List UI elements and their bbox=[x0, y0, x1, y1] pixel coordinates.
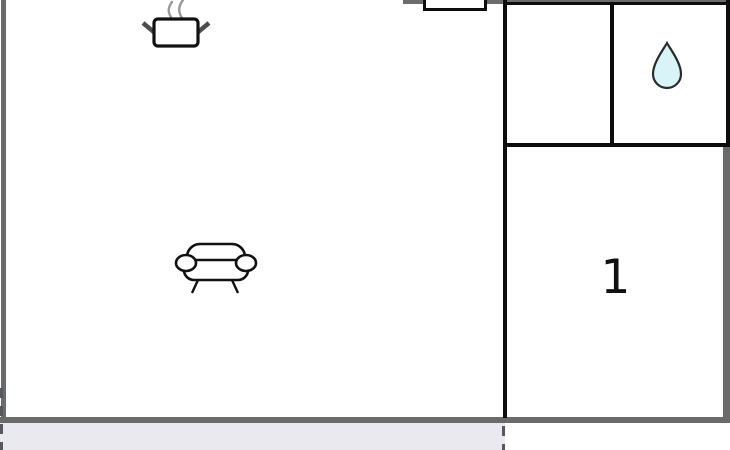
partition-main-vertical bbox=[503, 0, 507, 418]
droplet-shape bbox=[653, 43, 681, 88]
floorplan: 1 bbox=[0, 0, 730, 450]
pot-body bbox=[154, 19, 198, 46]
partition-horizontal bbox=[503, 143, 730, 147]
partition-top bbox=[503, 2, 730, 5]
steam-line bbox=[179, 0, 183, 18]
outer-wall-right bbox=[723, 145, 730, 423]
terrace-dashed-border-left bbox=[0, 388, 3, 450]
wall-opening bbox=[423, 0, 487, 11]
sofa-arm-left bbox=[176, 255, 196, 271]
cooking-pot-icon bbox=[140, 0, 212, 50]
sofa-leg-left bbox=[192, 280, 198, 293]
sofa-icon bbox=[174, 240, 258, 296]
terrace bbox=[0, 423, 505, 450]
bedroom-number-label: 1 bbox=[507, 250, 724, 306]
terrace-dashed-border-right bbox=[502, 426, 505, 450]
partition-bathroom-vertical bbox=[610, 2, 614, 146]
steam-line bbox=[169, 2, 172, 17]
outer-wall-left bbox=[1, 0, 6, 422]
sofa-arm-right bbox=[236, 255, 256, 271]
partition-right bbox=[726, 0, 730, 146]
water-droplet-icon bbox=[650, 41, 684, 93]
sofa-leg-right bbox=[232, 280, 238, 293]
